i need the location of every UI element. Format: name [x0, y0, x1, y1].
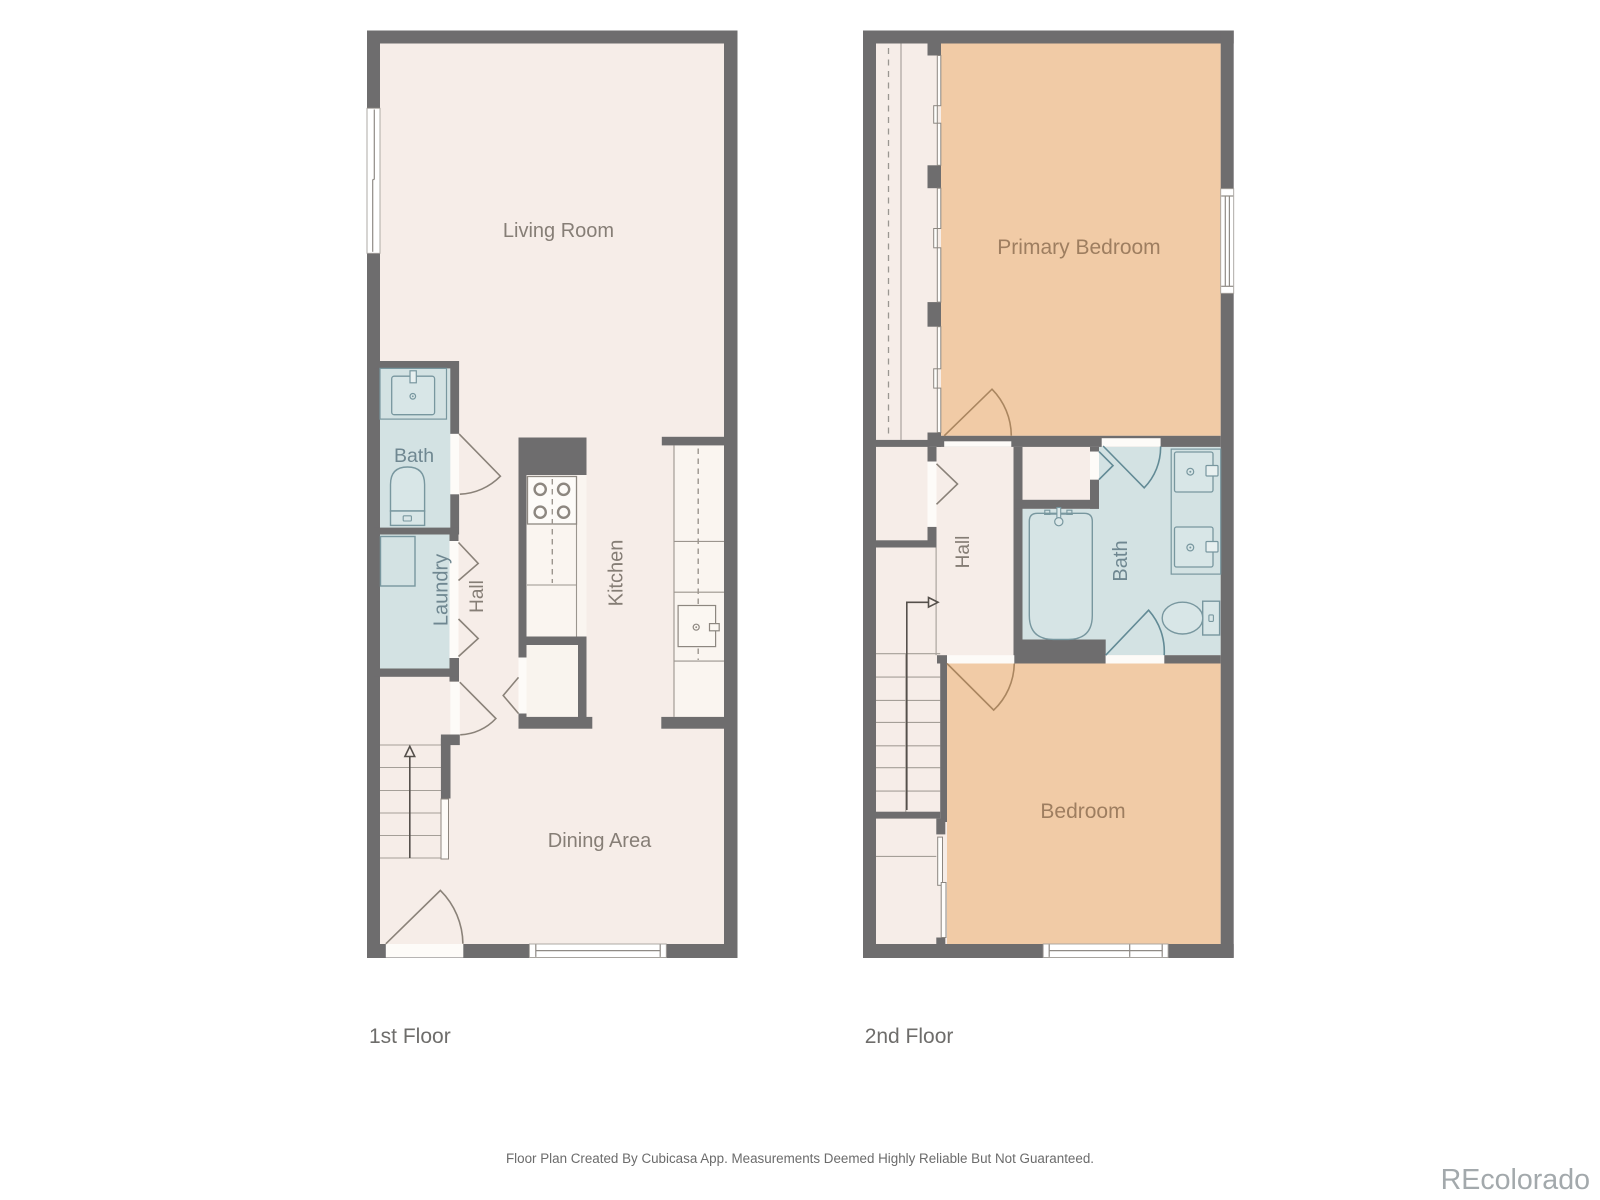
svg-text:Bedroom: Bedroom: [1040, 800, 1125, 823]
svg-text:Bath: Bath: [394, 445, 434, 467]
svg-text:Hall: Hall: [467, 580, 488, 613]
svg-text:Laundry: Laundry: [431, 554, 453, 626]
svg-text:Hall: Hall: [953, 536, 974, 569]
svg-text:2nd Floor: 2nd Floor: [865, 1025, 954, 1048]
svg-text:REcolorado: REcolorado: [1441, 1164, 1590, 1196]
svg-text:Kitchen: Kitchen: [606, 540, 628, 607]
svg-text:Living Room: Living Room: [503, 220, 614, 242]
svg-text:1st Floor: 1st Floor: [369, 1025, 451, 1048]
svg-text:Bath: Bath: [1110, 540, 1132, 581]
svg-text:Primary Bedroom: Primary Bedroom: [997, 236, 1160, 259]
svg-text:Floor Plan Created By Cubicasa: Floor Plan Created By Cubicasa App. Meas…: [506, 1151, 1094, 1166]
svg-text:Dining Area: Dining Area: [548, 830, 652, 852]
